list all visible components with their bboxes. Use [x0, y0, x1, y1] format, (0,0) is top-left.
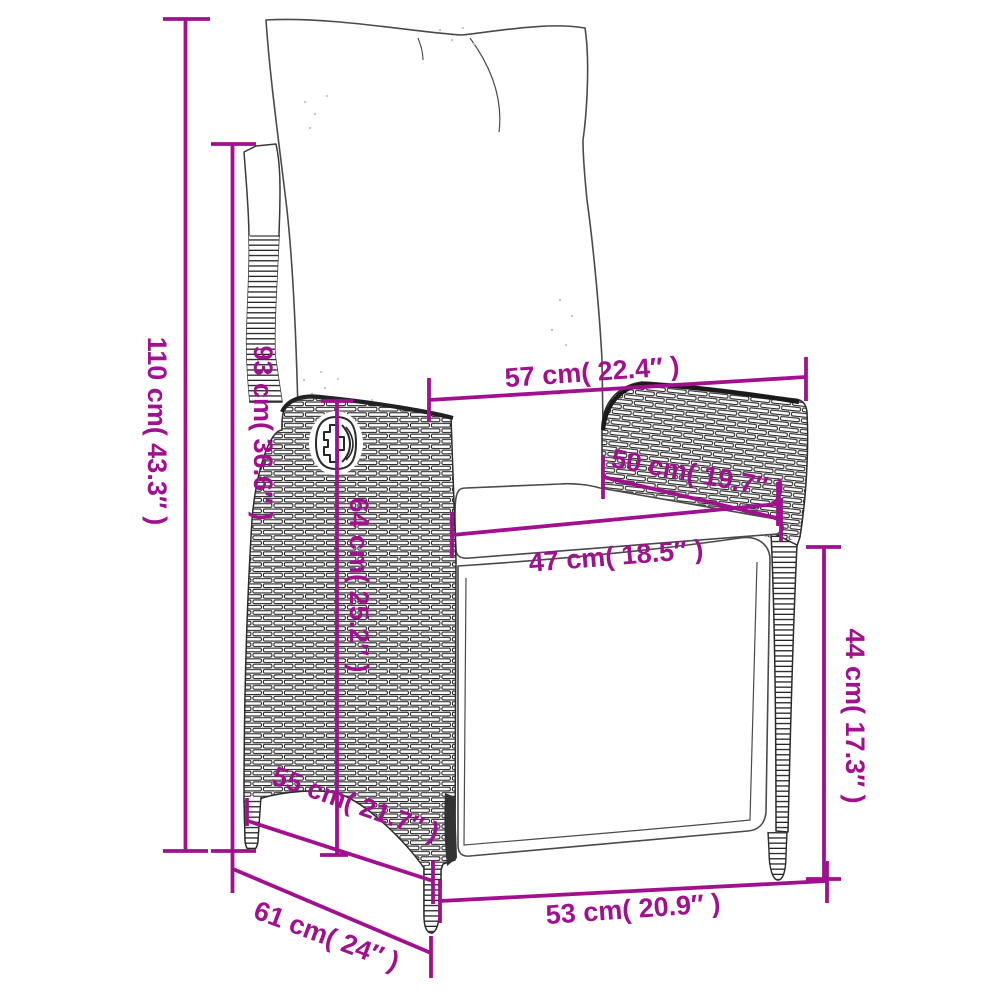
svg-text:93 cm( 36.6″ ): 93 cm( 36.6″ )	[248, 345, 278, 520]
svg-text:110 cm( 43.3″ ): 110 cm( 43.3″ )	[142, 337, 172, 526]
svg-text:64 cm( 25.2″ ): 64 cm( 25.2″ )	[344, 497, 374, 672]
svg-text:44 cm( 17.3″ ): 44 cm( 17.3″ )	[840, 628, 870, 803]
